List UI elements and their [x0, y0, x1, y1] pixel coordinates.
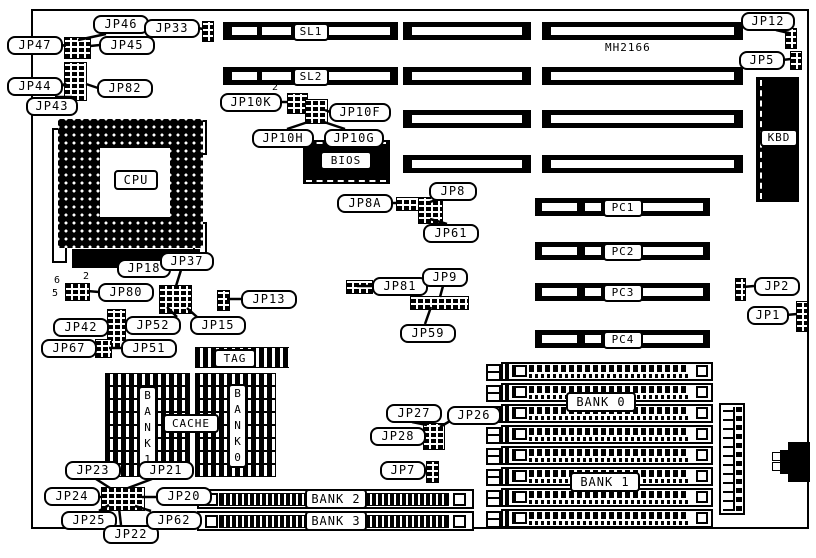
label-jp33: JP33	[144, 19, 200, 38]
label-jp43: JP43	[26, 97, 78, 116]
label-jp10h: JP10H	[252, 129, 314, 148]
jp80-pin6: 6	[54, 276, 60, 286]
label-jp12: JP12	[741, 12, 795, 31]
label-jp1: JP1	[747, 306, 789, 325]
label-jp7: JP7	[380, 461, 426, 480]
label-jp10k: JP10K	[220, 93, 282, 112]
label-jp8a: JP8A	[337, 194, 393, 213]
label-jp10g: JP10G	[324, 129, 384, 148]
label-jp46: JP46	[93, 15, 149, 34]
label-jp9: JP9	[422, 268, 468, 287]
label-jp44: JP44	[7, 77, 63, 96]
label-jp59: JP59	[400, 324, 456, 343]
label-jp67: JP67	[41, 339, 97, 358]
motherboard-diagram: CPU BIOS KBD TAG B A N K 1 B A N K 0 CAC…	[0, 0, 816, 558]
label-jp82: JP82	[97, 79, 153, 98]
label-jp27: JP27	[386, 404, 442, 423]
label-jp23: JP23	[65, 461, 121, 480]
jp80-pin5: 5	[52, 289, 58, 299]
label-jp52: JP52	[125, 316, 181, 335]
label-jp47: JP47	[7, 36, 63, 55]
label-jp10f: JP10F	[329, 103, 391, 122]
label-jp15: JP15	[190, 316, 246, 335]
label-jp21: JP21	[138, 461, 194, 480]
jp80-pin2: 2	[83, 272, 89, 282]
label-jp2: JP2	[754, 277, 800, 296]
label-jp5: JP5	[739, 51, 785, 70]
label-jp13: JP13	[241, 290, 297, 309]
label-jp26: JP26	[447, 406, 501, 425]
label-jp61: JP61	[423, 224, 479, 243]
label-jp37: JP37	[160, 252, 214, 271]
label-jp28: JP28	[370, 427, 426, 446]
label-jp81: JP81	[372, 277, 428, 296]
label-jp20: JP20	[156, 487, 212, 506]
label-jp24: JP24	[44, 487, 100, 506]
label-jp80: JP80	[98, 283, 154, 302]
label-jp8: JP8	[429, 182, 477, 201]
jp10k-pin2: 2	[272, 83, 278, 93]
label-jp42: JP42	[53, 318, 109, 337]
label-jp45: JP45	[99, 36, 155, 55]
label-jp51: JP51	[121, 339, 177, 358]
label-jp62: JP62	[146, 511, 202, 530]
